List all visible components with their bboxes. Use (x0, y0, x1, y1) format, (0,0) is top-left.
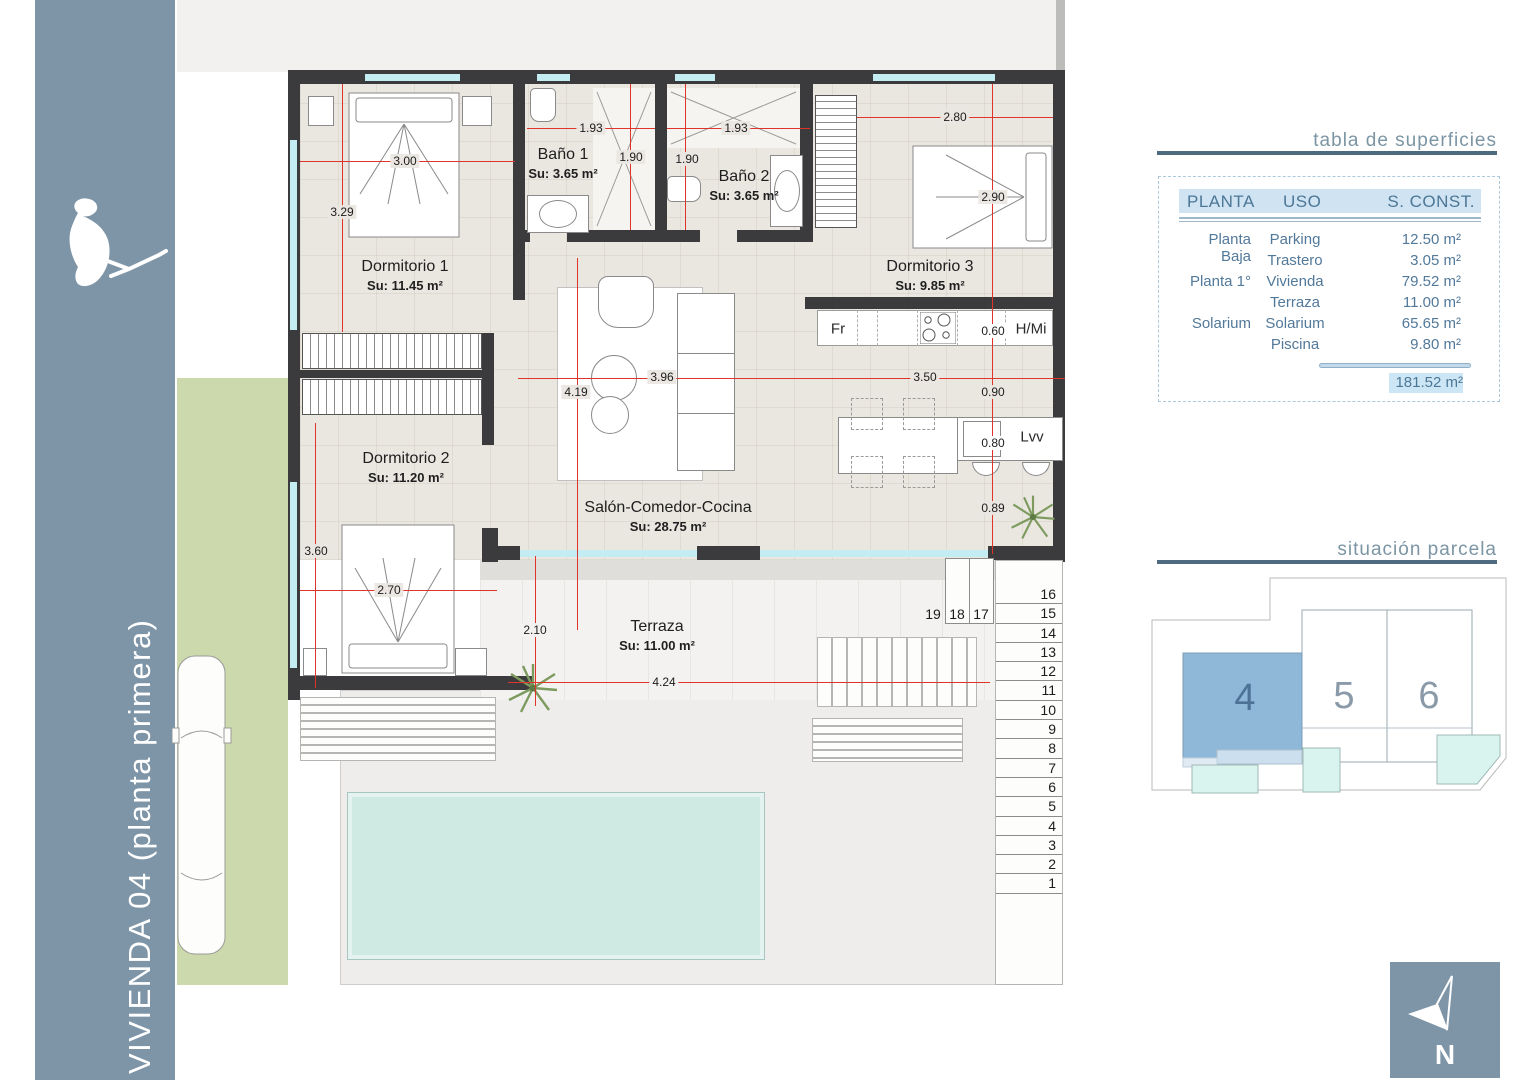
swimming-pool (347, 792, 765, 960)
cell-sconst: 79.52 m² (1379, 273, 1461, 290)
room-label-bano2: Baño 2 Su: 3.65 m² (709, 167, 778, 205)
cell-planta: Solarium (1179, 315, 1251, 332)
header-sconst: S. CONST. (1387, 192, 1475, 212)
parcela-map: 4 5 6 (1148, 572, 1508, 802)
sofa (677, 293, 735, 471)
cell-sconst: 65.65 m² (1379, 315, 1461, 332)
toilet (530, 88, 556, 122)
cell-planta: Planta 1° (1179, 273, 1251, 290)
palm-plant-icon (505, 660, 561, 716)
dimension-label: 0.60 (978, 324, 1007, 338)
parcela-title: situación parcela (1150, 539, 1497, 561)
wall (805, 297, 1065, 309)
chair (851, 456, 883, 488)
dimension-label: 4.24 (649, 675, 678, 689)
dimension-label: 0.89 (978, 501, 1007, 515)
stair-step: 1 (996, 874, 1062, 893)
dimension-label: 4.19 (561, 385, 590, 399)
dimension-label: 1.93 (576, 121, 605, 135)
room-label-salon: Salón-Comedor-Cocina Su: 28.75 m² (584, 498, 751, 536)
surfaces-table: PLANTA USO S. CONST. Planta Baja Parking… (1158, 176, 1500, 402)
dimension-label: 1.93 (721, 121, 750, 135)
sheet-title: VIVIENDA 04 (planta primera) (122, 618, 158, 1074)
dimension-label: 2.10 (520, 623, 549, 637)
cell-uso: Vivienda (1255, 273, 1335, 290)
stair-step: 5 (996, 797, 1062, 816)
wall (655, 84, 667, 230)
stair-step: 15 (996, 604, 1062, 623)
stair-number: 19 (925, 606, 941, 622)
room-label-dormitorio3: Dormitorio 3 Su: 9.85 m² (886, 257, 973, 295)
louver-band (300, 697, 496, 761)
cell-uso: Solarium (1255, 315, 1335, 332)
nightstand (462, 96, 492, 126)
cell-uso: Parking (1255, 231, 1335, 248)
table-row: Planta 1° Vivienda 79.52 m² (1179, 273, 1481, 294)
stair-step: 3 (996, 836, 1062, 855)
dimension-label: 2.90 (978, 190, 1007, 204)
oven-micro-label: H/Mi (1016, 321, 1047, 338)
cell-uso: Trastero (1255, 252, 1335, 269)
counter-divider (957, 310, 959, 346)
north-arrow-box: N (1390, 962, 1500, 1078)
washbasin (539, 200, 577, 228)
dimension-label: 3.00 (390, 154, 419, 168)
armchair (598, 276, 654, 328)
plot-4-terrace (1217, 750, 1302, 764)
room-label-terraza: Terraza Su: 11.00 m² (619, 617, 695, 655)
window (290, 482, 297, 668)
dimension-label: 0.80 (978, 436, 1007, 450)
plot-4-number: 4 (1234, 677, 1255, 719)
bed-icon (341, 524, 455, 674)
stair-steps: 16151413121110987654321 (996, 585, 1062, 894)
stair-step: 12 (996, 662, 1062, 681)
room-label-bano1: Baño 1 Su: 3.65 m² (528, 145, 597, 183)
wardrobe (815, 95, 857, 228)
stair-step: 8 (996, 739, 1062, 758)
dimension-line (992, 84, 993, 554)
header-planta: PLANTA (1187, 192, 1255, 212)
closet (302, 379, 482, 415)
wall (288, 676, 532, 690)
toilet (667, 176, 701, 202)
dimension-label: 0.90 (978, 385, 1007, 399)
wall (482, 546, 520, 560)
cell-sconst: 9.80 m² (1379, 336, 1461, 353)
table-header: PLANTA USO S. CONST. (1179, 189, 1481, 213)
wall (300, 370, 482, 378)
table-row: Trastero 3.05 m² (1179, 252, 1481, 273)
patio-paving (177, 0, 1063, 72)
chair (851, 398, 883, 430)
counter-divider (917, 310, 919, 346)
window (675, 74, 715, 81)
wall (737, 230, 813, 242)
dimension-label: 2.70 (374, 583, 403, 597)
window (537, 74, 570, 81)
nightstand (455, 648, 487, 676)
dimension-label: 1.90 (672, 152, 701, 166)
total-rule (1319, 363, 1471, 368)
dimension-label: 2.80 (940, 110, 969, 124)
cell-uso: Terraza (1255, 294, 1335, 311)
stair-step: 11 (996, 681, 1062, 700)
table-row: Planta Baja Parking 12.50 m² (1179, 231, 1481, 252)
window (520, 550, 1065, 557)
wall (697, 546, 760, 560)
title-rule (1157, 151, 1497, 155)
coffee-table (591, 396, 629, 434)
total-surface: 181.52 m² (1389, 373, 1463, 393)
stair-step: 14 (996, 624, 1062, 643)
closet (302, 333, 482, 369)
chair (903, 456, 935, 488)
plot-6-number: 6 (1418, 675, 1439, 717)
north-label: N (1435, 1039, 1455, 1070)
dimension-label: 1.90 (616, 150, 645, 164)
cell-sconst: 3.05 m² (1379, 252, 1461, 269)
stair-step: 16 (996, 585, 1062, 604)
header-uso: USO (1283, 192, 1321, 212)
pergola-slats (817, 637, 977, 707)
stair-step: 4 (996, 817, 1062, 836)
counter-divider (857, 310, 859, 346)
wall (482, 333, 494, 445)
table-row: Solarium Solarium 65.65 m² (1179, 315, 1481, 336)
pergola-steps (812, 718, 963, 762)
room-label-dormitorio1: Dormitorio 1 Su: 11.45 m² (361, 257, 448, 295)
nightstand (308, 96, 334, 126)
cell-sconst: 11.00 m² (1379, 294, 1461, 311)
wall (1053, 70, 1065, 562)
fridge-label: Fr (831, 321, 845, 338)
shower-icon (667, 88, 800, 148)
stair-number: 17 (973, 606, 989, 622)
palm-plant-icon (1008, 492, 1058, 542)
table-row: Terraza 11.00 m² (1179, 294, 1481, 315)
dimension-label: 3.29 (327, 205, 356, 219)
dimension-label: 3.60 (301, 544, 330, 558)
dishwasher-label: Lvv (1020, 429, 1043, 446)
window (290, 140, 297, 330)
floor-plan-sheet: VIVIENDA 04 (planta primera) (0, 0, 1527, 1080)
wall (988, 546, 1065, 560)
window (873, 74, 995, 81)
stair-step: 7 (996, 759, 1062, 778)
dimension-line (577, 258, 578, 630)
stair-step: 13 (996, 643, 1062, 662)
flamingo-logo-icon (45, 195, 170, 295)
small-pool (1192, 765, 1258, 793)
title-rule (1157, 560, 1497, 564)
boundary-wall (1056, 0, 1065, 70)
stair-step: 9 (996, 720, 1062, 739)
north-arrow-icon: N (1390, 962, 1500, 1078)
window (365, 74, 460, 81)
stair-step: 6 (996, 778, 1062, 797)
cell-uso: Piscina (1255, 336, 1335, 353)
dimension-line (518, 378, 1065, 379)
small-pool (1303, 748, 1340, 792)
hob-icon (920, 312, 956, 344)
wall (513, 84, 525, 300)
plot-5-number: 5 (1333, 675, 1354, 717)
dimension-label: 3.50 (910, 370, 939, 384)
cell-sconst: 12.50 m² (1379, 231, 1461, 248)
chair (903, 398, 935, 430)
dimension-line (508, 682, 990, 683)
table-row: Piscina 9.80 m² (1179, 336, 1481, 357)
dimension-label: 3.96 (647, 370, 676, 384)
stair-step: 10 (996, 701, 1062, 720)
room-label-dormitorio2: Dormitorio 2 Su: 11.20 m² (362, 449, 449, 487)
car-icon (172, 648, 232, 963)
surfaces-title: tabla de superficies (1150, 130, 1497, 152)
surfaces-table-body: Planta Baja Parking 12.50 m² Trastero 3.… (1179, 231, 1481, 357)
stair-step: 2 (996, 855, 1062, 874)
counter-divider (877, 310, 879, 346)
header-rule (1179, 217, 1481, 222)
stair-number: 18 (949, 606, 965, 622)
